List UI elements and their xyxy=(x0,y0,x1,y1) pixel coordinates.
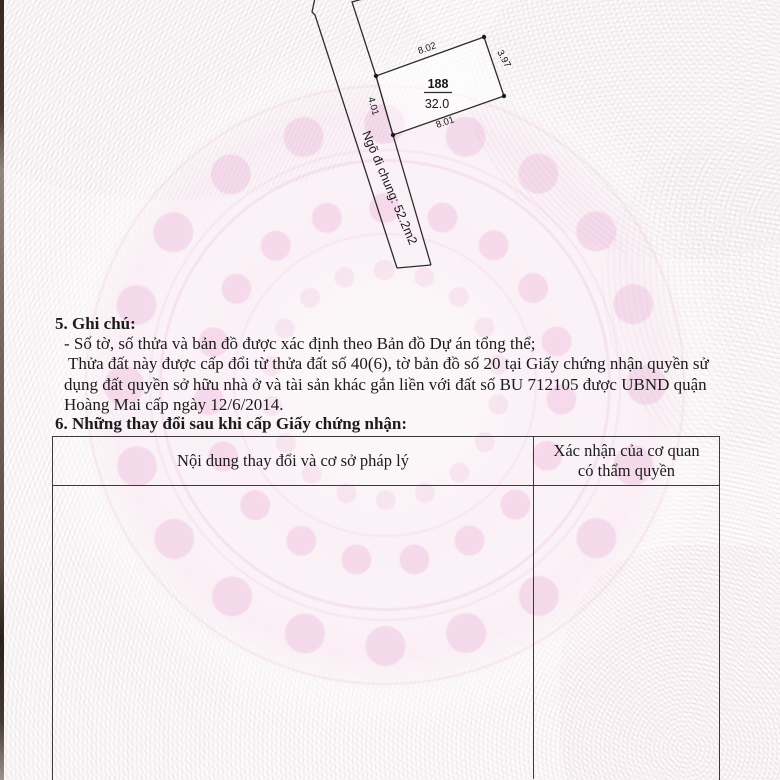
changes-table-body-row xyxy=(53,486,719,779)
changes-table-body-col1 xyxy=(53,486,534,779)
changes-table: Nội dung thay đổi và cơ sở pháp lý Xác n… xyxy=(52,436,720,780)
section6-heading: 6. Những thay đổi sau khi cấp Giấy chứng… xyxy=(55,414,407,434)
col2-header-label-line2: có thẩm quyền xyxy=(578,461,675,481)
section5-note-line: - Số tờ, số thửa và bản đồ được xác định… xyxy=(64,334,535,354)
scan-edge-artifact xyxy=(0,0,4,780)
section5-heading: 5. Ghi chú: xyxy=(55,314,136,334)
section5-note-line: dụng đất quyền sở hữu nhà ở và tài sản k… xyxy=(64,375,707,395)
changes-table-header-col2: Xác nhận của cơ quan có thẩm quyền xyxy=(534,437,719,485)
col1-header-label: Nội dung thay đổi và cơ sở pháp lý xyxy=(177,451,409,471)
section5-note-line: Hoàng Mai cấp ngày 12/6/2014. xyxy=(64,395,284,415)
section5-note-line: Thửa đất này được cấp đổi từ thửa đất số… xyxy=(68,354,709,374)
changes-table-body-col2 xyxy=(534,486,719,779)
col2-header-label-line1: Xác nhận của cơ quan xyxy=(553,441,699,461)
changes-table-header-col1: Nội dung thay đổi và cơ sở pháp lý xyxy=(53,437,534,485)
certificate-page: 8.02 3.97 8.01 4.01 188 32.0 Ngõ đi chun… xyxy=(0,0,780,780)
changes-table-header-row: Nội dung thay đổi và cơ sở pháp lý Xác n… xyxy=(53,437,719,486)
